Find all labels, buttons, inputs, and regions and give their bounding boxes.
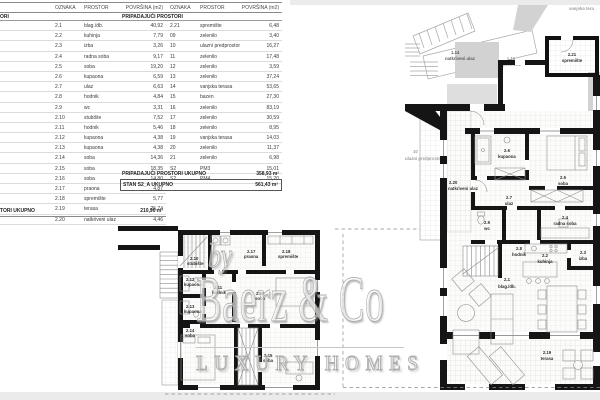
- row-oznaka: 2.15: [55, 166, 65, 172]
- row-oznaka: 17: [170, 115, 176, 121]
- room-label-name: hodnik: [512, 252, 527, 257]
- row-prostor: soba: [84, 64, 95, 70]
- table-row: 11zelenilo17,48: [120, 52, 282, 62]
- row-prostor: spremište: [84, 196, 106, 202]
- row-oznaka: 18: [170, 125, 176, 131]
- internal-stair: [463, 246, 498, 276]
- row-oznaka: 09: [170, 33, 176, 39]
- main-floor-plan: vanjska tera 1.15 spremište 10 ulazni pr…: [335, 0, 600, 400]
- row-prostor: stubište: [84, 115, 101, 121]
- row-prostor: zelenilo: [200, 54, 217, 60]
- row-povrsina: 6,98: [269, 155, 279, 161]
- row-prostor: soba: [84, 155, 95, 161]
- grand-total-row: STAN S2_A UKUPNO 561,43 m²: [120, 179, 282, 191]
- row-prostor: wc: [84, 105, 90, 111]
- row-prostor: zelenilo: [200, 33, 217, 39]
- room-label-number: 2.20: [449, 180, 458, 185]
- room-label-name: praona: [244, 254, 259, 259]
- room-label-name: stubište: [187, 261, 204, 266]
- table-row: 14vanjska terasa53,65: [120, 82, 282, 92]
- room-label-number: 2.2: [542, 253, 549, 258]
- table-row: 10ulazni predprostor16,27: [120, 41, 282, 51]
- row-prostor: vanjska terasa: [200, 84, 232, 90]
- room-label-number: 2.6: [504, 148, 511, 153]
- row-oznaka: 12: [170, 64, 176, 70]
- row-prostor: kupaona: [84, 145, 103, 151]
- col-header-oznaka: OZNAKA: [170, 5, 191, 11]
- row-oznaka: 2.6: [55, 74, 62, 80]
- row-oznaka: 13: [170, 74, 176, 80]
- row-oznaka: 16: [170, 105, 176, 111]
- row-povrsina: 11,37: [267, 145, 279, 151]
- row-prostor: kupaona: [84, 135, 103, 141]
- row-povrsina: 3,40: [269, 33, 279, 39]
- table-row: 2.18spremište5,77: [0, 194, 166, 204]
- room-label-name: kupaona: [498, 154, 516, 159]
- row-prostor: zelenilo: [200, 64, 217, 70]
- room-label-name: wc: [483, 226, 490, 231]
- row-oznaka: 2.4: [55, 54, 62, 60]
- storage-room-221: [498, 35, 597, 108]
- site-label-number: 1.14: [451, 50, 460, 55]
- room-label-number: 2.7: [506, 195, 513, 200]
- col-header-povrsina: POVRŠINA (m2): [242, 5, 279, 11]
- table-row: 12zelenilo3,59: [120, 62, 282, 72]
- room-label-number: 2.8: [516, 246, 523, 251]
- row-prostor: soba: [84, 166, 95, 172]
- row-prostor: kupaona: [84, 74, 103, 80]
- row-prostor: radna soba: [84, 54, 109, 60]
- table-row: 09zelenilo3,40: [120, 31, 282, 41]
- room-label-name: terasa: [541, 356, 554, 361]
- row-oznaka: 2.3: [55, 43, 62, 49]
- grand-total-value: 561,43 m²: [255, 182, 278, 188]
- row-prostor: bazen: [200, 94, 214, 100]
- row-oznaka: 2.2: [55, 33, 62, 39]
- row-povrsina: 6,48: [269, 23, 279, 29]
- row-povrsina: 17,48: [266, 54, 279, 60]
- row-oznaka: 21: [170, 155, 176, 161]
- row-oznaka: 10: [170, 43, 176, 49]
- row-oznaka: 2.13: [55, 145, 65, 151]
- table-row: 20zelenilo11,37: [120, 143, 282, 153]
- room-label-name: soba: [255, 296, 266, 301]
- room-label-name: kupaona: [184, 282, 202, 287]
- room-label-name: soba: [185, 333, 196, 338]
- row-prostor: spremište: [200, 23, 222, 29]
- site-label-name: natkriveni ulaz: [445, 56, 475, 61]
- row-prostor: soba: [84, 176, 95, 182]
- room-label-name: radna soba: [554, 221, 578, 226]
- table-row: 2.21spremište6,48: [120, 21, 282, 31]
- row-oznaka: 15: [170, 94, 176, 100]
- row-oznaka: 11: [170, 54, 175, 60]
- row-prostor: zelenilo: [200, 155, 217, 161]
- row-povrsina: 27,30: [266, 94, 279, 100]
- site-label-number: 10: [413, 149, 418, 154]
- row-prostor: zelenilo: [200, 125, 217, 131]
- row-povrsina: 16,27: [266, 43, 279, 49]
- row-oznaka: 2.12: [55, 135, 65, 141]
- room-label-number: 2.9: [484, 220, 491, 225]
- row-prostor: zelenilo: [200, 74, 217, 80]
- section-row: PRIPADAJUĆI PROSTORI: [120, 12, 282, 21]
- row-prostor: izba: [84, 43, 93, 49]
- col-header-oznaka: OZNAKA: [55, 5, 76, 11]
- room-label-name: natkriveni ulaz: [448, 186, 478, 191]
- room-label-number: 2.21: [568, 52, 577, 57]
- row-prostor: blag./db.: [84, 23, 103, 29]
- table-rows: 2.21spremište6,4809zelenilo3,4010ulazni …: [120, 21, 282, 184]
- side-terrace-strip: [162, 300, 178, 385]
- row-oznaka: 19: [170, 135, 176, 141]
- row-oznaka: 14: [170, 84, 176, 90]
- row-prostor: zelenilo: [200, 115, 217, 121]
- row-prostor: zelenilo: [200, 145, 217, 151]
- total-value: 358,93 m²: [256, 171, 279, 177]
- room-label-name: kupaona: [184, 309, 202, 314]
- table-row: 13zelenilo37,24: [120, 72, 282, 82]
- table-row: 15bazen27,30: [120, 92, 282, 102]
- col-header-prostor: PROSTOR: [84, 5, 109, 11]
- room-label-name: spremište: [562, 58, 583, 63]
- total-label: PRIPADAJUĆI PROSTORI UKUPNO: [122, 171, 206, 177]
- floor-plan-sheet: OZNAKA PROSTOR POVRŠINA (m2) ORI 2.1blag…: [0, 0, 600, 400]
- room-label-number: 2.3: [580, 250, 587, 255]
- room-label-number: 2.19: [543, 350, 552, 355]
- stair-shaft: [238, 328, 258, 385]
- row-oznaka: 2.16: [55, 176, 65, 182]
- row-oznaka: 2.21: [170, 23, 180, 29]
- total-value: 210,90 m²: [140, 208, 163, 214]
- row-povrsina: 83,19: [266, 105, 279, 111]
- row-oznaka: 2.18: [55, 196, 65, 202]
- room-label-number: 2.4: [562, 215, 569, 220]
- table-row: 18zelenilo8,95: [120, 123, 282, 133]
- row-oznaka: 2.11: [55, 125, 64, 131]
- row-oznaka: 2.17: [55, 186, 65, 192]
- watermark-divider: [196, 347, 404, 348]
- row-oznaka: 2.9: [55, 105, 62, 111]
- site-label-vanjska-terasa: vanjska tera: [569, 6, 594, 11]
- row-oznaka: 2.7: [55, 84, 62, 90]
- row-prostor: praona: [84, 186, 100, 192]
- room-label-name: spremište: [278, 254, 299, 259]
- row-oznaka: 2.14: [55, 155, 65, 161]
- room-label-name: kuhinja: [537, 259, 553, 264]
- row-prostor: zelenilo: [200, 105, 217, 111]
- room-label-name: ulaz: [505, 201, 513, 206]
- table-row: 19vanjska terasa14,03: [120, 133, 282, 143]
- col-header-prostor: PROSTOR: [200, 5, 225, 11]
- row-oznaka: 2.8: [55, 94, 62, 100]
- row-povrsina: 8,95: [269, 125, 279, 131]
- grand-total-label: STAN S2_A UKUPNO: [123, 182, 173, 188]
- exterior-stair: [160, 252, 178, 298]
- room-label-number: 2.1: [504, 277, 511, 282]
- room-label-name: soba: [263, 358, 274, 363]
- row-prostor: hodnik: [84, 94, 99, 100]
- section-label: PRIPADAJUĆI PROSTORI: [122, 14, 183, 20]
- total-label: TORI UKUPNO: [0, 208, 35, 214]
- table-row: 17zelenilo30,59: [120, 113, 282, 123]
- row-oznaka: 2.20: [55, 217, 65, 223]
- row-oznaka: 2.1: [55, 23, 62, 29]
- area-table-associated: OZNAKA PROSTOR POVRŠINA (m2) PRIPADAJUĆI…: [120, 2, 282, 192]
- row-povrsina: 5,77: [153, 196, 163, 202]
- room-label-number: 2.5: [560, 175, 567, 180]
- table-total-row: PRIPADAJUĆI PROSTORI UKUPNO 358,93 m²: [120, 169, 282, 180]
- room-label-name: soba: [558, 181, 569, 186]
- row-prostor: hodnik: [84, 125, 99, 131]
- row-povrsina: 37,24: [266, 74, 279, 80]
- table-row: 21zelenilo6,98: [120, 153, 282, 163]
- row-oznaka: 2.5: [55, 64, 62, 70]
- room-label-name: blag./db.: [498, 284, 516, 289]
- row-oznaka: 20: [170, 145, 176, 151]
- room-label-name: izba: [579, 256, 588, 261]
- row-povrsina: 53,65: [266, 84, 279, 90]
- row-prostor: kuhinja: [84, 33, 100, 39]
- row-prostor: ulaz: [84, 84, 93, 90]
- row-oznaka: 2.10: [55, 115, 65, 121]
- row-povrsina: 14,03: [266, 135, 279, 141]
- row-prostor: vanjska terasa: [200, 135, 232, 141]
- row-povrsina: 3,59: [269, 64, 279, 70]
- room-label-name: hodnik: [212, 290, 227, 295]
- table-total-row: TORI UKUPNO 210,90 m²: [0, 206, 166, 217]
- row-povrsina: 30,59: [266, 115, 279, 121]
- section-label-fragment: ORI: [0, 14, 9, 20]
- upper-floor-plan: 2.10 stubište 2.17 praona 2.18 spremište…: [110, 222, 335, 398]
- row-prostor: ulazni predprostor: [200, 43, 240, 49]
- table-row: 16zelenilo83,19: [120, 103, 282, 113]
